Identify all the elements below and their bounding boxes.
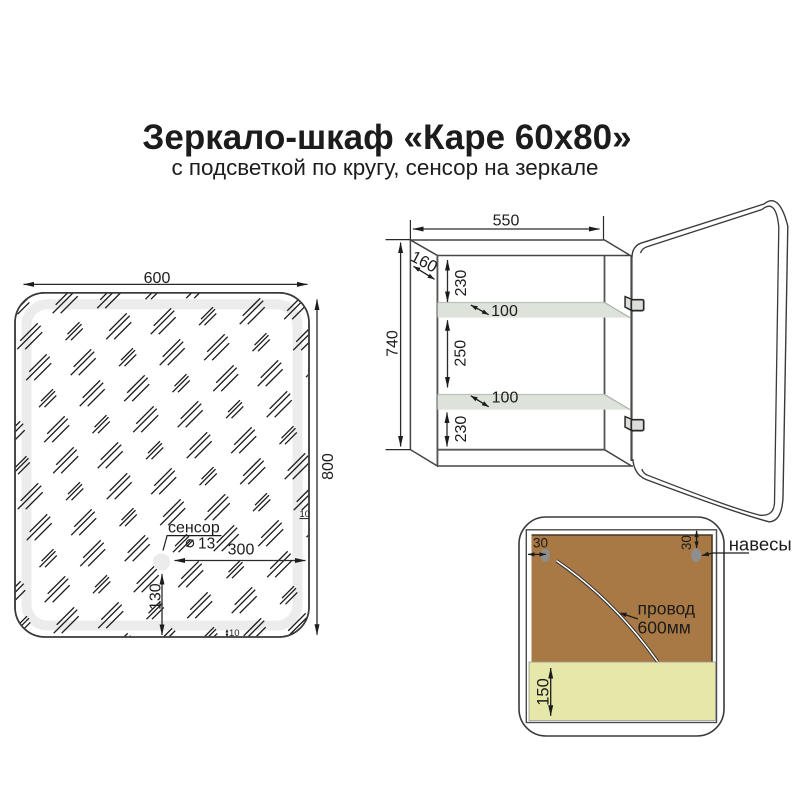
svg-text:130: 130 (148, 583, 165, 610)
svg-text:13: 13 (198, 536, 215, 553)
svg-text:30: 30 (533, 535, 548, 550)
svg-text:100: 100 (491, 303, 518, 320)
svg-text:с подсветкой по кругу, сенсор: с подсветкой по кругу, сенсор на зеркале (172, 155, 599, 180)
svg-text:10: 10 (229, 628, 240, 639)
svg-text:150: 150 (535, 678, 553, 706)
svg-text:600мм: 600мм (638, 618, 691, 638)
svg-text:600: 600 (144, 270, 171, 287)
svg-text:30: 30 (679, 535, 694, 550)
svg-text:навесы: навесы (729, 534, 792, 555)
svg-text:230: 230 (453, 270, 470, 297)
svg-text:230: 230 (453, 416, 470, 443)
svg-text:провод: провод (638, 599, 696, 619)
svg-text:800: 800 (320, 453, 337, 480)
svg-text:Зеркало-шкаф «Каре 60х80»: Зеркало-шкаф «Каре 60х80» (142, 118, 631, 157)
svg-text:250: 250 (452, 340, 469, 367)
svg-text:100: 100 (492, 390, 519, 407)
svg-text:740: 740 (385, 330, 402, 357)
svg-text:сенсор: сенсор (168, 520, 220, 537)
svg-text:300: 300 (228, 542, 255, 559)
svg-text:550: 550 (493, 213, 520, 230)
